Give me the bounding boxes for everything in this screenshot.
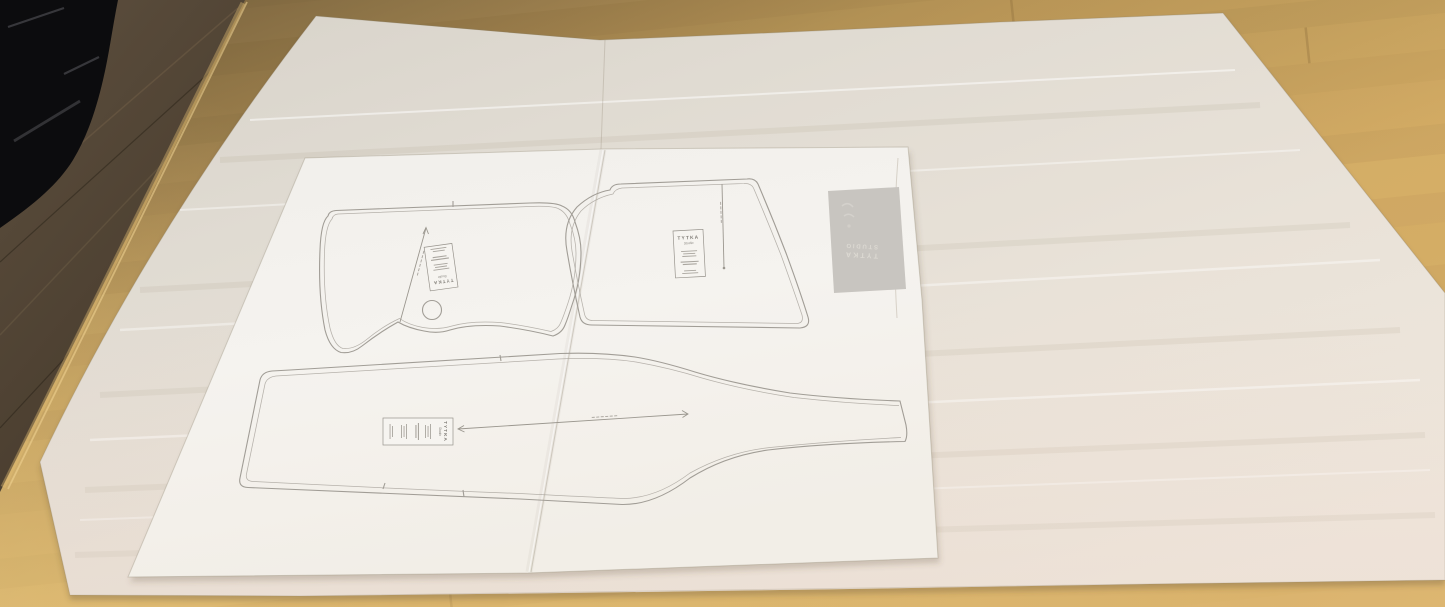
piece-label: TYTKA Studio: [424, 243, 458, 290]
brand-stamp-block: TYTKA STUDIO: [828, 187, 906, 293]
piece-label: TYTKA Studio: [383, 418, 453, 445]
scene-canvas: TYTKA Studio TYTKA: [0, 0, 1445, 607]
photo-sewing-pattern-on-table: TYTKA Studio TYTKA: [0, 0, 1445, 607]
piece-label-sub: Studio: [438, 427, 442, 436]
piece-label-sub: Studio: [684, 241, 694, 246]
piece-label-brand: TYTKA: [443, 421, 448, 442]
piece-label: TYTKA Studio: [673, 229, 705, 278]
